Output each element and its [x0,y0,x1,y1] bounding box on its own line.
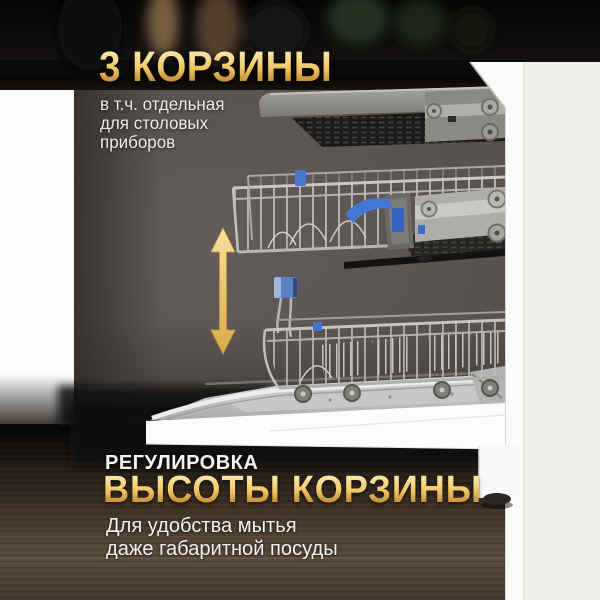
basket-blue-handle-grip [392,208,404,232]
plate-tines [428,333,466,371]
leg-foot-roller [483,493,511,505]
page-title: 3 КОРЗИНЫ [99,46,332,89]
footer-description: Для удобства мытья даже габаритной посуд… [106,514,338,560]
plate-tines [470,330,503,366]
header-subtitle: в т.ч. отдельная для столовых приборов [100,95,224,152]
plate-tines [372,336,412,375]
kitchen-blur-shape [452,8,492,52]
basket-blue-clip [313,322,322,331]
promo-banner: 3 КОРЗИНЫ в т.ч. отдельная для столовых … [0,0,600,600]
footer-title: ВЫСОТЫ КОРЗИНЫ [103,471,482,509]
header-subtitle-line: в т.ч. отдельная [100,95,224,114]
left-wall-white [0,90,74,380]
plate-tines [320,341,360,379]
header-subtitle-line: приборов [100,133,224,152]
right-wall [523,62,600,600]
basket-blue-clip [295,170,306,186]
plant-blur [394,0,446,46]
footer-description-line: даже габаритной посуды [106,537,338,560]
header-subtitle-line: для столовых [100,114,224,133]
tray-rail-rollers [425,88,505,142]
basket-slide-rail [415,188,506,242]
footer-description-line: Для удобства мытья [106,514,338,537]
